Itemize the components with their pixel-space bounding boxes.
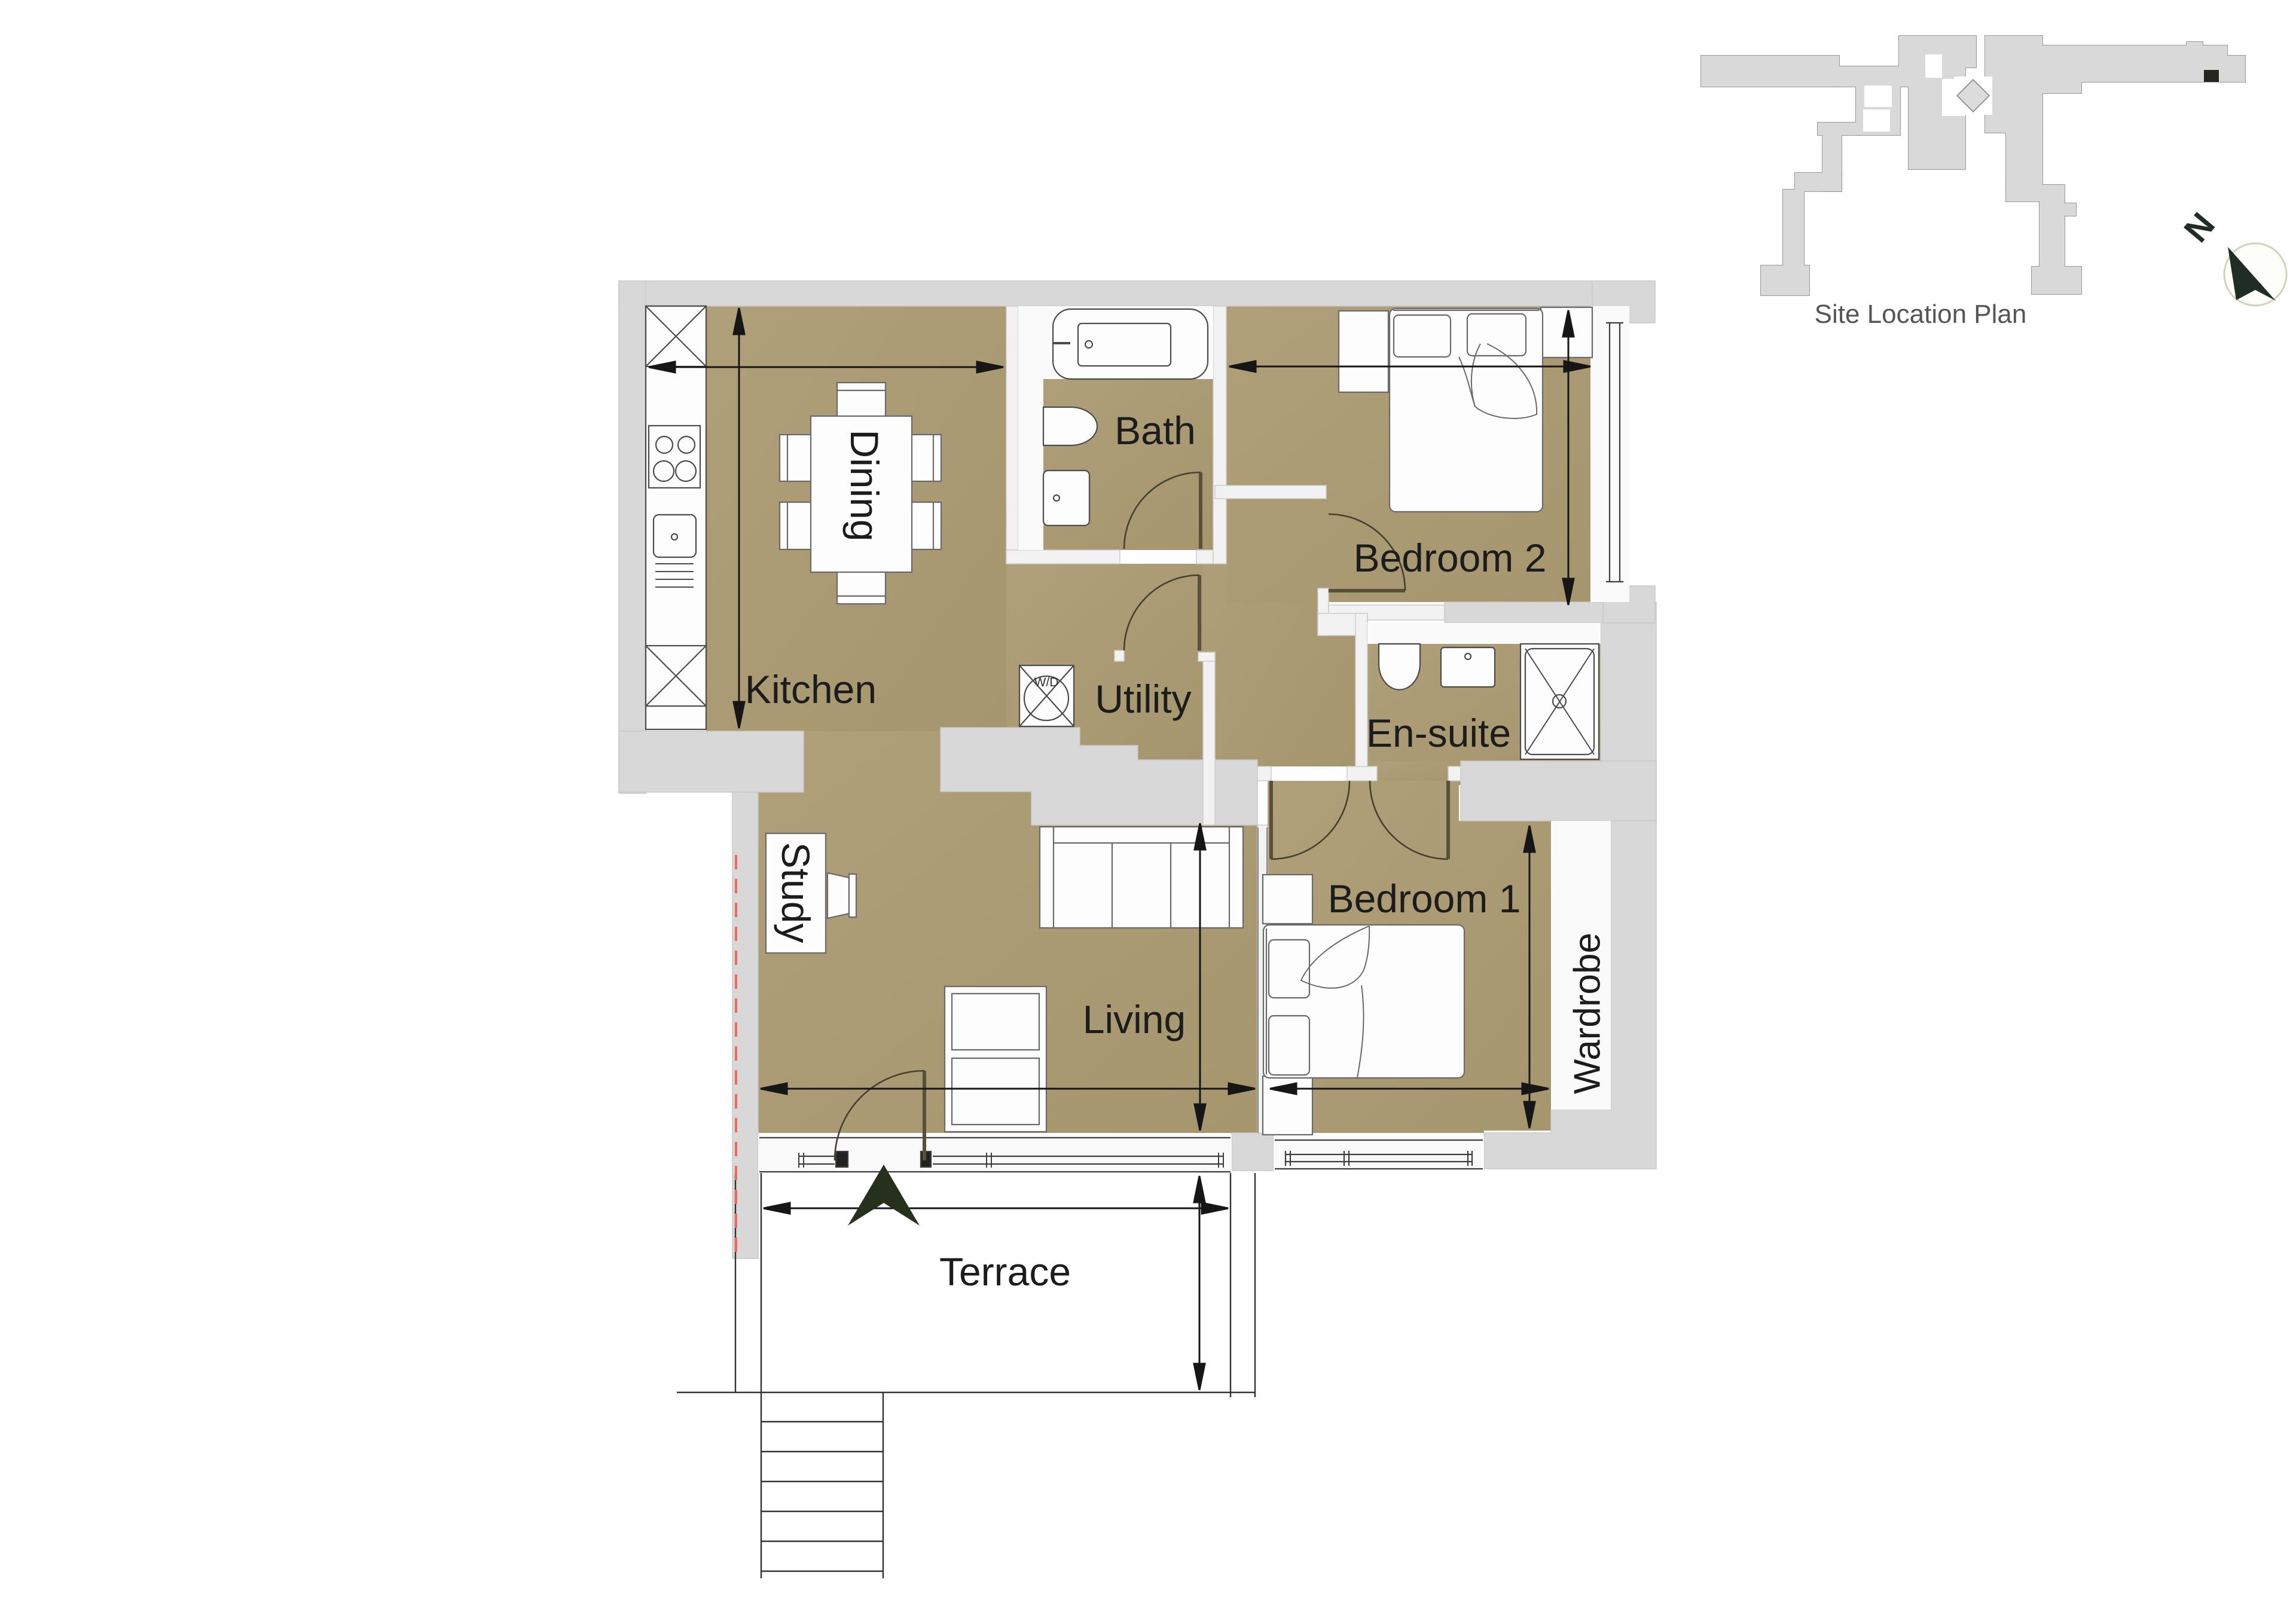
svg-text:Bath: Bath — [1115, 408, 1196, 453]
svg-text:Wardrobe: Wardrobe — [1567, 933, 1608, 1094]
svg-text:Study: Study — [774, 842, 818, 943]
svg-text:En-suite: En-suite — [1366, 711, 1511, 755]
svg-text:Kitchen: Kitchen — [745, 667, 877, 711]
svg-text:N: N — [2176, 206, 2222, 250]
svg-text:W/D: W/D — [1034, 676, 1059, 689]
svg-text:Utility: Utility — [1095, 677, 1191, 721]
svg-text:Terrace: Terrace — [939, 1250, 1071, 1294]
svg-text:Dining: Dining — [842, 429, 887, 541]
svg-text:Living: Living — [1083, 997, 1186, 1041]
svg-text:Bedroom 2: Bedroom 2 — [1354, 536, 1547, 580]
svg-text:Site Location Plan: Site Location Plan — [1815, 300, 2027, 329]
svg-text:Bedroom 1: Bedroom 1 — [1328, 876, 1521, 921]
